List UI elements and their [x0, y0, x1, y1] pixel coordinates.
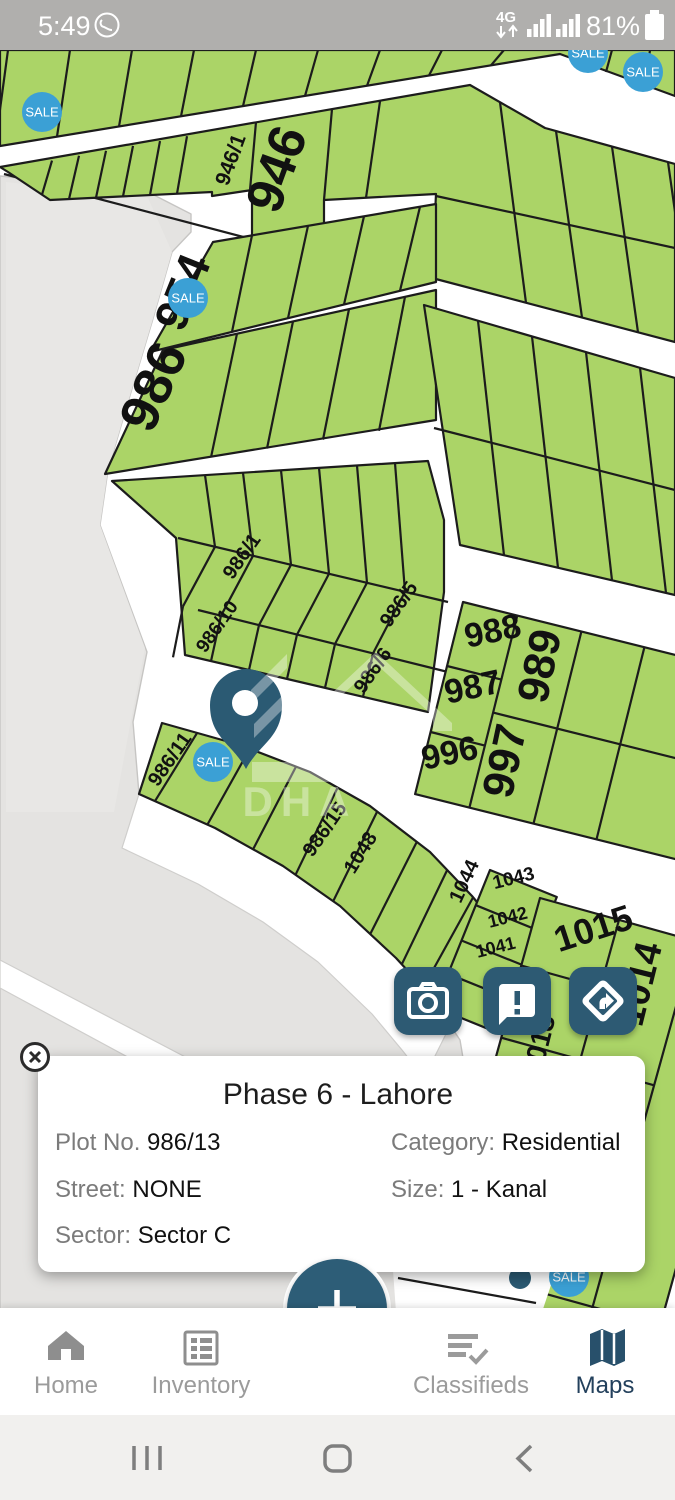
svg-text:Classifieds: Classifieds [413, 1372, 529, 1399]
svg-text:Maps: Maps [576, 1372, 635, 1399]
svg-text:SALE: SALE [25, 105, 59, 120]
svg-text:DHA: DHA [243, 778, 358, 825]
svg-text:SALE: SALE [171, 291, 205, 306]
svg-text:Size: 1 - Kanal: Size: 1 - Kanal [391, 1176, 547, 1203]
svg-text:Sector: Sector C: Sector: Sector C [55, 1222, 231, 1249]
svg-text:Street: NONE: Street: NONE [55, 1176, 202, 1203]
svg-text:Home: Home [34, 1372, 98, 1399]
svg-text:81%: 81% [586, 11, 640, 41]
svg-text:Plot No. 986/13: Plot No. 986/13 [55, 1129, 220, 1156]
svg-text:4G: 4G [496, 9, 516, 26]
svg-text:Category: Residential: Category: Residential [391, 1129, 620, 1156]
svg-text:Inventory: Inventory [152, 1372, 251, 1399]
svg-text:SALE: SALE [196, 755, 230, 770]
svg-text:Phase 6 - Lahore: Phase 6 - Lahore [223, 1078, 453, 1111]
svg-text:SALE: SALE [626, 65, 660, 80]
svg-text:5:49: 5:49 [38, 11, 91, 41]
